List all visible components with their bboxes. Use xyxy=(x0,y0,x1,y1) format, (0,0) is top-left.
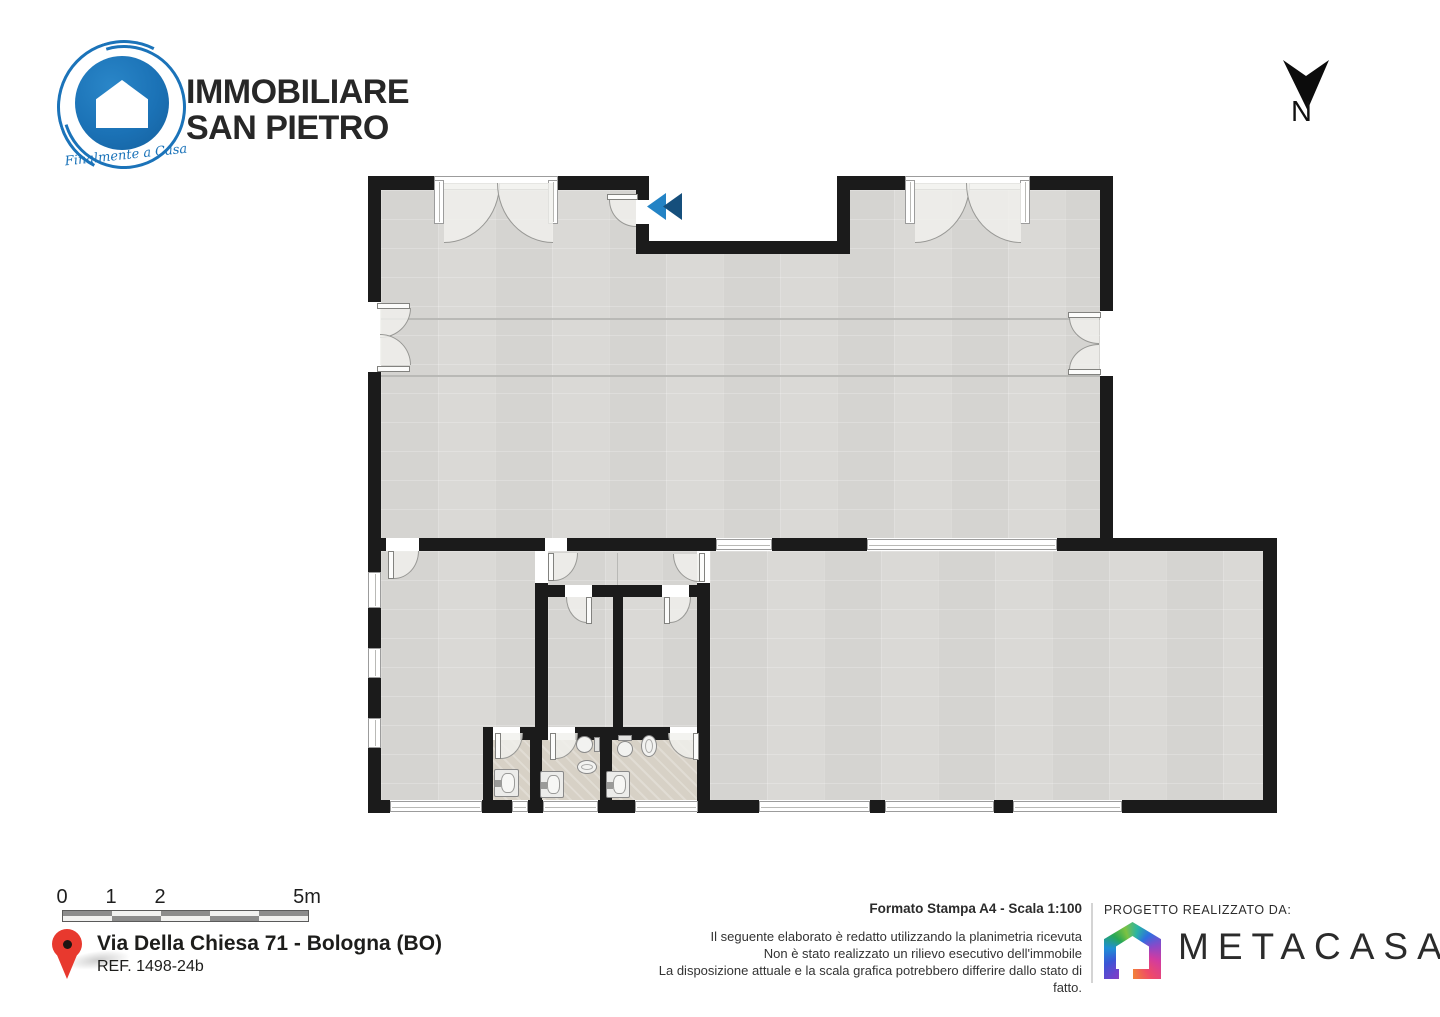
jamb-top-right-b xyxy=(1020,180,1030,224)
credit-brand: METACASA xyxy=(1178,926,1440,968)
bottom-wall-g xyxy=(994,800,1013,813)
window-bottom-c xyxy=(543,801,598,812)
gap-room-bl-door xyxy=(386,538,419,551)
window-left-b xyxy=(368,648,381,678)
right-wall-lower xyxy=(1263,551,1277,813)
sink-mid-bath xyxy=(540,771,564,798)
bidet-bowl xyxy=(577,760,597,774)
bidet-right-bath xyxy=(641,735,657,757)
leaf-wc-right xyxy=(664,597,670,624)
band-line-lower xyxy=(381,375,1100,377)
print-info-block: Formato Stampa A4 - Scala 1:100 Il segue… xyxy=(640,901,1082,996)
scale-bar-segment xyxy=(259,916,308,921)
print-format: Formato Stampa A4 - Scala 1:100 xyxy=(640,901,1082,916)
scale-label-0: 0 xyxy=(56,886,67,909)
top-wall-r1 xyxy=(837,176,905,190)
scale-bar-segment xyxy=(210,916,259,921)
gap-vestibule-west xyxy=(535,551,548,583)
sink-right-bath xyxy=(606,771,630,798)
metacasa-logo-icon xyxy=(1104,922,1161,979)
top-wall-l2 xyxy=(558,176,649,190)
bottom-wall-d xyxy=(598,800,635,813)
left-wall-d xyxy=(368,608,381,648)
right-wall-a xyxy=(1100,176,1113,311)
mid-wall-b xyxy=(419,538,545,551)
disclaimer-line-3: La disposizione attuale e la scala grafi… xyxy=(640,962,1082,996)
bidet-bowl xyxy=(641,735,657,757)
window-bottom-e xyxy=(759,801,870,812)
notch-wall-right xyxy=(837,190,850,241)
band-line-upper xyxy=(381,318,1100,320)
window-left-c xyxy=(368,718,381,748)
bath-west-wall xyxy=(483,727,493,800)
scale-label-1: 1 xyxy=(105,886,116,909)
window-left-a xyxy=(368,572,381,608)
scale-bar-graphic xyxy=(62,910,309,922)
leaf-bath-left xyxy=(495,733,501,759)
wc-middle-wall xyxy=(613,585,623,727)
window-mid-b xyxy=(867,539,1057,550)
leaf-left-dd-top xyxy=(377,303,410,309)
left-wall-e xyxy=(368,678,381,718)
wc-east-wall-a xyxy=(697,583,710,727)
left-wall-b xyxy=(368,372,381,551)
reference-code: REF. 1498-24b xyxy=(97,958,204,976)
mid-wall-c xyxy=(567,538,716,551)
sink-left-bath xyxy=(494,769,519,797)
leaf-right-dd-bottom xyxy=(1068,369,1101,375)
scale-bar: 0 1 2 5m xyxy=(62,886,322,926)
leaf-left-dd-bottom xyxy=(377,366,410,372)
scale-bar-segment xyxy=(63,916,112,921)
bath-north-wall-b xyxy=(520,727,548,740)
leaf-vestibule-west xyxy=(548,553,554,581)
left-wall-a xyxy=(368,176,381,302)
toilet-bowl xyxy=(617,741,633,757)
bottom-wall-c xyxy=(528,800,543,813)
floor-plan xyxy=(0,0,1440,1017)
bottom-wall-b xyxy=(482,800,512,813)
leaf-entrance xyxy=(607,194,638,200)
wc-north-wall-a xyxy=(535,585,565,597)
vestibule-divider xyxy=(617,553,618,585)
floorplan-page: Finalmente a Casa IMMOBILIARE SAN PIETRO… xyxy=(0,0,1440,1017)
gap-entrance-door xyxy=(636,200,649,224)
toilet-mid-bath xyxy=(576,736,600,753)
leaf-bath-right xyxy=(693,733,699,760)
address-line: Via Della Chiesa 71 - Bologna (BO) xyxy=(97,932,442,956)
leaf-room-bl xyxy=(388,551,394,579)
leaf-wc-left xyxy=(586,597,592,624)
toilet-tank xyxy=(594,737,600,752)
mid-wall-d xyxy=(772,538,867,551)
right-wall-b xyxy=(1100,376,1113,538)
window-bottom-a xyxy=(390,801,482,812)
mid-wall-a xyxy=(368,538,386,551)
gap-right-double-door xyxy=(1100,311,1113,376)
leaf-right-dd-top xyxy=(1068,312,1101,318)
gap-wc-right-door xyxy=(662,585,689,597)
scale-bar-segment xyxy=(161,916,210,921)
disclaimer-line-2: Non è stato realizzato un rilievo esecut… xyxy=(640,945,1082,962)
bidet-mid-bath xyxy=(577,760,597,774)
left-wall-c xyxy=(368,551,381,572)
leaf-vestibule-east xyxy=(699,553,705,582)
gap-wc-left-door xyxy=(565,585,592,597)
jamb-top-left-a xyxy=(434,180,444,224)
toilet-right-bath xyxy=(617,735,633,757)
scale-bar-segment xyxy=(112,916,161,921)
notch-wall-bottom xyxy=(636,241,850,254)
window-bottom-f xyxy=(885,801,994,812)
disclaimer-line-1: Il seguente elaborato è redatto utilizza… xyxy=(640,928,1082,945)
jamb-top-right-a xyxy=(905,180,915,224)
bottom-wall-f xyxy=(870,800,885,813)
floor-room-bottom-right xyxy=(710,551,1263,800)
scale-label-5m: 5m xyxy=(293,886,321,909)
bottom-wall-a xyxy=(368,800,390,813)
leaf-bath-mid xyxy=(550,733,556,760)
toilet-bowl xyxy=(576,736,593,753)
gap-vestibule-door xyxy=(545,538,567,551)
credit-label: PROGETTO REALIZZATO DA: xyxy=(1104,903,1291,917)
window-bottom-d xyxy=(635,801,698,812)
bottom-wall-h xyxy=(1122,800,1277,813)
map-pin-icon xyxy=(50,929,86,981)
footer-divider xyxy=(1091,903,1093,983)
wc-north-wall-b xyxy=(592,585,662,597)
window-bottom-g xyxy=(1013,801,1122,812)
scale-label-2: 2 xyxy=(154,886,165,909)
window-mid-a xyxy=(716,539,772,550)
mid-wall-e xyxy=(1057,538,1277,551)
window-bottom-b xyxy=(512,801,528,812)
wc-west-wall xyxy=(535,583,548,727)
